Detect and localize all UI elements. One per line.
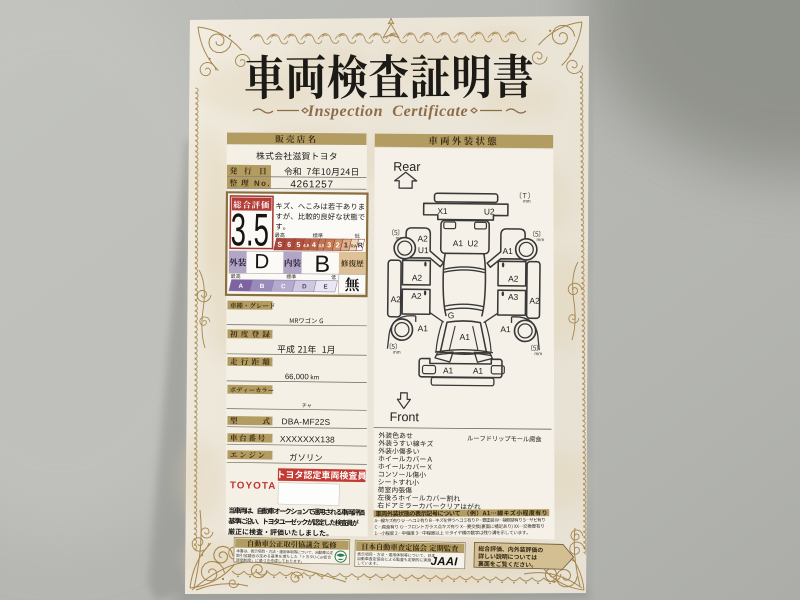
svg-text:Front: Front <box>390 410 420 424</box>
svg-text:6: 6 <box>287 240 291 249</box>
svg-text:B: B <box>260 283 265 290</box>
svg-text:66,000: 66,000 <box>285 372 310 381</box>
svg-text:A3: A3 <box>508 292 519 302</box>
svg-text:1: 1 <box>344 240 348 249</box>
svg-text:A1: A1 <box>502 246 513 256</box>
svg-text:A1: A1 <box>473 366 484 376</box>
svg-text:4: 4 <box>312 240 316 249</box>
svg-text:3: 3 <box>327 240 331 249</box>
svg-text:A2: A2 <box>412 273 423 283</box>
svg-text:R: R <box>358 243 363 250</box>
svg-text:A1: A1 <box>460 332 471 342</box>
svg-text:A1: A1 <box>453 238 464 248</box>
svg-text:D: D <box>254 250 269 273</box>
svg-text:A: A <box>239 283 244 290</box>
svg-text:XXXXXXX138: XXXXXXX138 <box>280 434 335 445</box>
svg-text:A2: A2 <box>391 294 402 304</box>
svg-text:G: G <box>448 310 455 320</box>
svg-text:A2: A2 <box>529 296 540 306</box>
svg-text:U2: U2 <box>484 206 495 216</box>
svg-text:Inspection Certificate: Inspection Certificate <box>307 103 468 120</box>
svg-text:mm: mm <box>534 351 542 356</box>
svg-text:A2: A2 <box>508 274 519 284</box>
svg-text:U1: U1 <box>418 245 429 255</box>
svg-text:Rear: Rear <box>393 160 420 174</box>
svg-text:E: E <box>323 284 327 291</box>
svg-text:U2: U2 <box>467 238 478 248</box>
svg-text:2: 2 <box>336 240 340 249</box>
svg-text:TOYOTA: TOYOTA <box>230 480 277 492</box>
svg-text:A2: A2 <box>411 291 422 301</box>
svg-text:X1: X1 <box>437 206 448 216</box>
svg-text:mm: mm <box>537 237 545 242</box>
svg-text:A1: A1 <box>443 365 454 375</box>
svg-text:A1: A1 <box>500 324 511 334</box>
svg-text:S: S <box>277 240 282 249</box>
svg-text:mm: mm <box>393 350 401 355</box>
svg-text:C: C <box>281 283 286 290</box>
svg-text:A2: A2 <box>418 233 429 243</box>
svg-text:B: B <box>314 251 330 277</box>
svg-text:A1: A1 <box>418 323 429 333</box>
svg-text:No.: No. <box>254 179 271 188</box>
svg-text:mm: mm <box>523 199 531 204</box>
svg-text:JAAI: JAAI <box>430 556 458 569</box>
svg-text:3.5: 3.5 <box>230 205 269 256</box>
svg-text:DBA-MF22S: DBA-MF22S <box>281 416 330 427</box>
svg-text:5: 5 <box>296 240 300 249</box>
svg-text:D: D <box>302 283 307 290</box>
